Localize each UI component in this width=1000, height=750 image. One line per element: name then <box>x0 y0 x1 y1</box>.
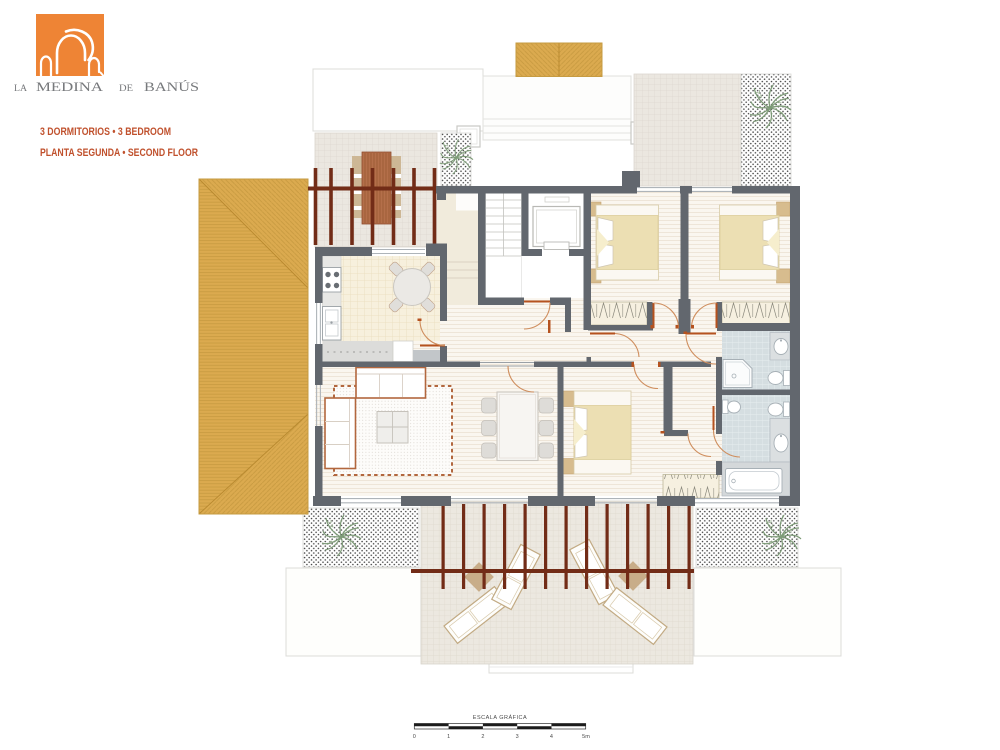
svg-text:BANÚS: BANÚS <box>144 80 199 94</box>
svg-text:3: 3 <box>516 734 519 740</box>
svg-text:0: 0 <box>413 734 416 740</box>
svg-text:3 DORMITORIOS • 3 BEDROOM: 3 DORMITORIOS • 3 BEDROOM <box>40 126 171 138</box>
svg-text:LA: LA <box>14 83 27 94</box>
svg-text:ESCALA GRÁFICA: ESCALA GRÁFICA <box>473 714 527 721</box>
svg-text:PLANTA SEGUNDA • SECOND FLOOR: PLANTA SEGUNDA • SECOND FLOOR <box>40 147 198 159</box>
svg-text:5m: 5m <box>582 734 590 740</box>
svg-text:2: 2 <box>481 734 484 740</box>
svg-text:1: 1 <box>447 734 450 740</box>
svg-text:MEDINA: MEDINA <box>36 80 104 94</box>
svg-text:DE: DE <box>119 83 133 94</box>
svg-text:4: 4 <box>550 734 553 740</box>
